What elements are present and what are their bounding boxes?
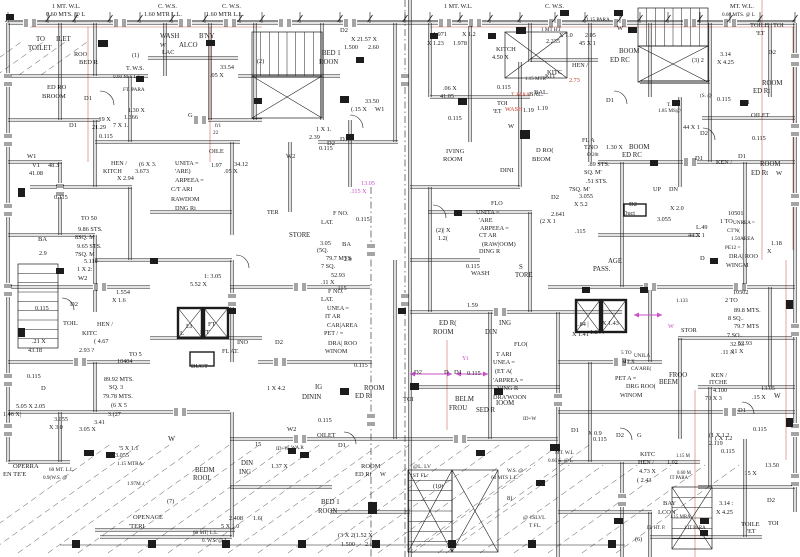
- plan-label: ROOM: [364, 385, 384, 392]
- plan-label: 1.60 MTR L.L.: [144, 11, 182, 18]
- plan-label: .21 X: [32, 338, 46, 345]
- plan-label: BAY: [663, 500, 676, 507]
- plan-label: X 4.25: [716, 509, 733, 516]
- plan-label: 7 X 1.: [113, 122, 129, 129]
- plan-label: 1.6(: [253, 515, 263, 522]
- plan-label: 0.115: [593, 436, 607, 443]
- plan-label: L.49: [696, 224, 708, 231]
- plan-label: D1: [340, 136, 348, 143]
- plan-label: TO 5: [129, 351, 142, 358]
- plan-label: X 3.0: [49, 424, 63, 431]
- plan-label: INO: [237, 339, 249, 346]
- plan-label: 1.2(: [438, 235, 448, 242]
- plan-label: (3 X 2(1.52 X: [338, 532, 373, 539]
- plan-label: 1.84 |: [575, 321, 589, 328]
- plan-label: 0.60 MTS. @ L: [46, 11, 85, 18]
- plan-label: DININ: [302, 394, 321, 401]
- plan-label: 9.86 STS.: [78, 226, 103, 233]
- plan-label: FLO(: [514, 341, 528, 348]
- plan-label: IVING: [446, 148, 465, 155]
- plan-label: ED R(: [439, 320, 457, 327]
- plan-label: 0.115: [448, 115, 462, 122]
- plan-label: 3.055: [54, 416, 68, 423]
- plan-label: STOR: [289, 232, 307, 239]
- plan-label: L: [180, 330, 184, 337]
- plan-label: 1.15 MTRA.: [117, 461, 144, 467]
- plan-label: LAC: [162, 49, 174, 56]
- plan-label: ROO: [74, 51, 88, 58]
- plan-label: 2.60: [368, 44, 379, 51]
- plan-label: 0.115: [319, 145, 333, 152]
- plan-label: 7SQ. M: [75, 251, 95, 258]
- plan-label: BELM: [455, 396, 474, 403]
- plan-label: TOI: [768, 520, 779, 527]
- plan-label: 'ARE): [175, 168, 191, 175]
- plan-label: (ET A(: [495, 368, 512, 375]
- plan-label: BA: [342, 241, 351, 248]
- plan-label: TOI: [773, 22, 784, 29]
- plan-label: KITC: [640, 451, 655, 458]
- plan-label: VING R: [497, 385, 519, 392]
- plan-label: X 4.25: [717, 59, 734, 66]
- plan-label: 'ET: [493, 108, 502, 115]
- plan-label: (10): [433, 483, 443, 490]
- plan-label: DRG ROO(: [626, 383, 656, 390]
- plan-label: 8SQ. M: [75, 234, 95, 241]
- plan-label: .115: [575, 228, 586, 235]
- plan-label: ID+W: [523, 416, 536, 422]
- plan-label: 1.30 X: [128, 107, 145, 114]
- plan-label: TOIL: [63, 320, 78, 327]
- plan-label: FT. PARA: [123, 87, 145, 93]
- plan-label: TO 50: [81, 215, 97, 222]
- plan-label: HEN /: [97, 321, 113, 328]
- plan-label: 1.19: [523, 107, 534, 114]
- plan-label: IT. HT. P.: [647, 526, 665, 531]
- plan-label: PET A =: [615, 375, 637, 382]
- plan-label: 0.60 MTS. @ L: [722, 12, 755, 18]
- plan-label: DRA| ROO: [729, 253, 758, 260]
- plan-label: DN: [669, 186, 678, 193]
- plan-label: D1: [742, 99, 750, 106]
- plan-label: BEDM: [195, 467, 215, 474]
- plan-label: D1: [69, 122, 77, 129]
- plan-label: W: [774, 392, 781, 400]
- plan-label: DUCT: [191, 363, 208, 370]
- plan-label: KITCH: [496, 46, 516, 53]
- plan-label: 3.05: [320, 240, 331, 247]
- plan-label: G: [188, 112, 193, 119]
- plan-label: 2.9: [39, 250, 47, 257]
- plan-label: T. W.S.: [126, 65, 145, 72]
- plan-label: 1.978: [453, 40, 467, 47]
- plan-label: UNEA =: [493, 359, 515, 366]
- plan-label: BOOM: [619, 48, 639, 55]
- plan-label: 3.05 X: [79, 426, 96, 433]
- plan-label: HEN /: [111, 160, 127, 167]
- plan-label: ING: [239, 469, 251, 476]
- plan-label: 2.05: [585, 32, 596, 39]
- plan-label: 4.100: [713, 387, 727, 394]
- plan-label: 60 MT| L.L.: [193, 530, 219, 536]
- plan-label: 3.055: [657, 216, 671, 223]
- plan-label: V1: [32, 162, 40, 169]
- plan-label: 1.15 M: [676, 454, 691, 459]
- plan-label: 2.9: [344, 256, 352, 263]
- plan-label: D2: [551, 194, 559, 201]
- plan-label: 1ST FL.: [410, 473, 429, 479]
- plan-label: KITC: [82, 330, 97, 337]
- plan-label: ED RO: [47, 84, 67, 91]
- plan-label: 1.133: [676, 298, 688, 304]
- plan-label: 0.9(W.S. @: [43, 474, 67, 481]
- plan-label: X 1.2: [462, 31, 476, 38]
- plan-label: O 20t: [587, 152, 599, 158]
- plan-label: C. W.S.: [158, 3, 177, 10]
- plan-label: 7SQ. M': [569, 186, 590, 193]
- plan-label: 21.29: [92, 124, 106, 131]
- plan-label: ( 4.67: [94, 338, 108, 345]
- plan-label: G: [637, 432, 642, 439]
- plan-label: BEEM: [659, 379, 678, 386]
- plan-label: 4.50 X: [492, 54, 509, 61]
- plan-label: 0.115: [466, 263, 480, 270]
- plan-label: 32.93: [730, 341, 744, 348]
- plan-label: 1 MT. W.L.: [444, 3, 473, 10]
- plan-label: 2 TO: [725, 297, 738, 304]
- plan-label: 2.60: [365, 541, 376, 548]
- plan-label: D2: [70, 301, 78, 308]
- plan-label: SED R: [476, 407, 496, 414]
- plan-label: D2: [700, 130, 708, 137]
- plan-label: 0.115: [318, 417, 332, 424]
- plan-label: 2.39: [309, 134, 320, 141]
- plan-label: ED Rt: [355, 393, 372, 400]
- plan-label: DNG Ri: [175, 205, 196, 212]
- plan-label: 41.08: [29, 170, 43, 177]
- plan-label: UNITA =: [476, 209, 500, 216]
- plan-label: 'ET: [747, 528, 756, 535]
- plan-label: 1: 3.05: [204, 273, 221, 280]
- plan-label: 0.115: [99, 133, 113, 140]
- plan-label: ROOM: [443, 156, 463, 163]
- plan-label: UNILA: [634, 353, 650, 359]
- plan-label: .05 X: [224, 168, 238, 175]
- plan-label: BED 1: [321, 499, 340, 506]
- plan-label: 7.SO..: [727, 332, 743, 339]
- plan-label: X: [767, 248, 772, 255]
- plan-label: 1.30 X: [606, 144, 623, 151]
- plan-label: BROOM: [42, 93, 66, 100]
- plan-label: D1: [695, 155, 703, 162]
- plan-label: 13.50: [765, 462, 779, 469]
- plan-label: D1: [84, 95, 92, 102]
- plan-label: D: [444, 369, 449, 376]
- plan-label: .11 X: [321, 279, 335, 286]
- plan-label: .15 X: [743, 470, 757, 477]
- plan-label: LAT.: [321, 296, 334, 303]
- plan-label: (1): [132, 52, 139, 59]
- plan-label: MT. W.L: [555, 450, 574, 456]
- plan-label: D: [41, 385, 46, 392]
- plan-label: CAR|AREA: [327, 322, 358, 329]
- plan-label: X 1.43: [602, 320, 619, 327]
- plan-label: KEN /: [716, 159, 732, 166]
- plan-label: D RO(: [536, 147, 554, 154]
- plan-label: ROOM: [433, 329, 453, 336]
- plan-label: 89.92 MTS.: [104, 376, 134, 383]
- plan-label: .51 STS.: [586, 178, 608, 185]
- plan-label: IG: [315, 384, 322, 391]
- plan-label: 2.408: [229, 515, 243, 522]
- plan-label: S: [519, 264, 523, 271]
- plan-label: fr1: [215, 122, 221, 129]
- plan-label: 48.3: [48, 162, 59, 169]
- plan-label: T ARI: [496, 351, 512, 358]
- plan-label: OILE: [209, 148, 224, 155]
- plan-label: CT AR: [479, 232, 497, 239]
- plan-label: TER: [267, 209, 280, 216]
- plan-label: (6 X 3.: [139, 161, 157, 168]
- plan-label: IFT: [200, 329, 210, 336]
- plan-label: 5.05 X 2.05: [16, 403, 45, 410]
- plan-label: 2.641: [551, 211, 565, 218]
- plan-label: 1.15 MTR: [525, 77, 547, 82]
- plan-label: IOOM: [496, 400, 514, 407]
- plan-label: (RAW|OOM): [482, 241, 516, 248]
- plan-label: D2: [414, 369, 422, 376]
- plan-label: WINGM: [726, 262, 749, 269]
- plan-label: LI: [186, 323, 192, 330]
- plan-label: FLO: [491, 200, 503, 207]
- plan-label: CA'ARE(: [631, 365, 652, 372]
- plan-label: UNREA =: [733, 220, 755, 226]
- plan-label: (5Q.: [317, 247, 329, 254]
- plan-label: E: [306, 232, 310, 239]
- plan-label: T. PARA: [511, 92, 530, 98]
- plan-label: PE12 =: [725, 245, 741, 251]
- plan-label: 10501: [728, 210, 743, 217]
- plan-label: (2)| X: [436, 227, 451, 234]
- plan-label: W.S. @: [507, 468, 523, 474]
- plan-label: 15: [255, 441, 261, 448]
- plan-label: IT PARA: [670, 476, 689, 481]
- plan-label: FROO: [669, 372, 687, 379]
- plan-label: 89.8 MTS.: [734, 307, 761, 314]
- plan-label: 0.115: [54, 194, 68, 201]
- plan-label: D1: [571, 427, 579, 434]
- plan-label: ROOM: [760, 161, 780, 168]
- plan-label: (1 X 1.2: [709, 432, 729, 439]
- plan-label: 1 X 1.: [316, 126, 332, 133]
- plan-label: TOI: [403, 396, 414, 403]
- plan-label: @ 1SLVL: [523, 515, 546, 521]
- plan-label: 2.235: [546, 38, 560, 45]
- plan-label: ID+W: [276, 446, 289, 452]
- plan-label: 3.673: [135, 168, 149, 175]
- plan-label: 0.115: [27, 373, 41, 380]
- plan-label: FL A: [582, 137, 595, 144]
- plan-label: 45 X 1: [579, 40, 596, 47]
- plan-label: LAT.: [321, 219, 334, 226]
- plan-label: 5.52 X: [190, 281, 207, 288]
- plan-label: 1.18: [771, 240, 782, 247]
- plan-label: PET / =: [324, 330, 344, 337]
- plan-label: .15 X: [752, 394, 766, 401]
- plan-label: HEN /: [572, 62, 588, 69]
- plan-label: .19 X: [97, 116, 111, 123]
- plan-label: TOILE: [750, 22, 769, 29]
- plan-label: ING: [499, 320, 511, 327]
- plan-label: 1 MT. W.L.: [52, 3, 81, 10]
- plan-label: 'ARPREA =: [493, 377, 524, 384]
- plan-label: 'ARE: [479, 217, 493, 224]
- plan-label: 1.46 X|: [3, 411, 21, 418]
- plan-label: W1: [375, 106, 384, 113]
- plan-label: 3.(27: [108, 411, 121, 418]
- plan-label: Yt: [462, 355, 468, 362]
- plan-label: .05 X: [210, 72, 224, 79]
- plan-label: 'ET: [756, 30, 765, 37]
- plan-label: 3.055: [579, 193, 593, 200]
- plan-label: 10404: [117, 358, 132, 365]
- plan-label: 2.73: [569, 77, 580, 84]
- plan-label: SQ. 3: [109, 384, 123, 391]
- plan-label: ARPEEA =: [480, 225, 509, 232]
- plan-label: 1.50AREA: [731, 236, 754, 242]
- plan-label: 1.02: [667, 459, 678, 466]
- plan-label: 1.37 X: [271, 463, 288, 470]
- plan-label: DING R: [479, 248, 501, 255]
- plan-label: 3.14 :: [719, 500, 733, 507]
- plan-label: WA.R: [291, 445, 304, 451]
- plan-label: Duct: [623, 210, 635, 217]
- plan-label: 1.97M .(: [127, 480, 145, 487]
- plan-label: 60 MTS L.L.: [491, 475, 518, 481]
- plan-label: ROOM: [361, 463, 381, 470]
- plan-label: .06 X: [443, 85, 457, 92]
- plan-label: (6 X 5: [111, 402, 127, 409]
- plan-label: X 2.0: [670, 205, 684, 212]
- plan-label: D2: [340, 27, 348, 34]
- plan-label: 4.73 X: [639, 468, 656, 475]
- plan-label: OILET: [317, 432, 336, 439]
- plan-label: 1 X 2:: [77, 266, 93, 273]
- floorplan-canvas: 1 MT. W.L.0.60 MTS. @ LC. W.S.1.60 MTR L…: [0, 0, 800, 557]
- plan-label: F NO.: [328, 288, 344, 295]
- plan-label: 0.115: [467, 370, 481, 377]
- plan-label: DIN: [241, 460, 253, 467]
- plan-label: WASH: [505, 106, 523, 113]
- plan-label: 1 IT PARA: [684, 526, 706, 531]
- plan-label: DRA| ROO: [328, 340, 357, 347]
- plan-label: (3) 2: [692, 57, 704, 64]
- plan-label: 0.115: [753, 426, 767, 433]
- plan-label: (6): [635, 536, 642, 543]
- plan-label: T.NO: [584, 144, 598, 151]
- plan-label: 70 X 3: [705, 395, 722, 402]
- plan-label: ROOM: [762, 80, 782, 87]
- plan-label: X 1.23: [427, 40, 444, 47]
- plan-label: W: [776, 170, 783, 177]
- plan-label: EN TE'E: [3, 471, 26, 478]
- plan-label: HEN /: [638, 459, 654, 466]
- plan-label: BEOM: [532, 156, 551, 163]
- plan-label: ED RC: [622, 152, 642, 159]
- plan-label: ROON: [319, 59, 338, 66]
- plan-label: KEN /: [711, 372, 727, 379]
- plan-label: D: [700, 255, 705, 262]
- plan-label: OPENACE: [133, 514, 163, 521]
- plan-label: W2: [286, 153, 295, 160]
- plan-label: BED 1: [322, 50, 341, 57]
- plan-label: ED RC: [610, 57, 630, 64]
- plan-label: ARPEEA =: [175, 177, 204, 184]
- plan-label: 9.65 STS.: [77, 243, 102, 250]
- plan-label: (S. @: [700, 92, 712, 99]
- plan-label: .115 X: [350, 188, 367, 195]
- plan-label: 44 X 1: [683, 124, 700, 131]
- plan-label: W: [508, 123, 515, 130]
- plan-label: T FL.: [529, 523, 542, 529]
- plan-label: BAL.: [534, 89, 549, 96]
- plan-label: ALCO: [179, 42, 198, 49]
- floorplan-sheet: 1 MT. W.L.0.60 MTS. @ LC. W.S.1.60 MTR L…: [0, 0, 800, 557]
- plan-label: TOILET: [28, 45, 53, 52]
- plan-label: 13.05: [361, 180, 375, 187]
- plan-label: X 2.94: [117, 175, 134, 182]
- plan-label: 60 MT. L.L.: [49, 467, 74, 473]
- plan-label: 2.93 ?: [79, 347, 94, 354]
- plan-label: ITCHE: [709, 379, 727, 386]
- plan-label: ED R(: [355, 471, 372, 478]
- plan-label: F NO.: [333, 210, 349, 217]
- plan-label: B'NY: [199, 33, 215, 40]
- plan-label: KITCH: [103, 168, 122, 175]
- plan-label: CT'N(: [727, 227, 740, 234]
- plan-label: 0.60 S. @ L: [548, 458, 573, 464]
- plan-label: W1: [27, 153, 36, 160]
- plan-label: 1.60 MTR L.L.: [206, 11, 244, 18]
- plan-label: MT. W.L.: [730, 3, 754, 10]
- plan-label: .89 STS.: [588, 161, 610, 168]
- plan-label: D2: [275, 339, 283, 346]
- plan-label: 8 SQ..: [728, 315, 744, 322]
- plan-label: @L. LV: [413, 464, 431, 470]
- plan-label: 0.115: [752, 135, 766, 142]
- plan-label: 3.055: [115, 452, 129, 459]
- plan-label: W: [168, 434, 176, 443]
- plan-label: 1 X 4.2: [267, 385, 285, 392]
- plan-label: 10502: [733, 289, 748, 296]
- plan-label: IT AR: [325, 313, 341, 320]
- plan-label: W2: [78, 275, 87, 282]
- plan-label: '5 X 1.1: [119, 445, 139, 452]
- plan-label: ROON: [318, 508, 337, 515]
- plan-label: C. W.S.: [545, 3, 564, 10]
- plan-label: 0.115: [721, 448, 735, 455]
- plan-label: X 5.2: [574, 201, 588, 208]
- plan-label: W: [668, 323, 674, 330]
- plan-label: 1.15 PARA.: [586, 17, 611, 23]
- plan-label: D1: [454, 369, 462, 376]
- plan-label: (2): [257, 58, 264, 65]
- plan-label: TORE: [515, 272, 533, 279]
- plan-label: D2: [767, 497, 775, 504]
- plan-label: 1.971: [433, 31, 447, 38]
- plan-label: 1.84 :: [590, 329, 604, 336]
- plan-label: 41.05: [440, 93, 454, 100]
